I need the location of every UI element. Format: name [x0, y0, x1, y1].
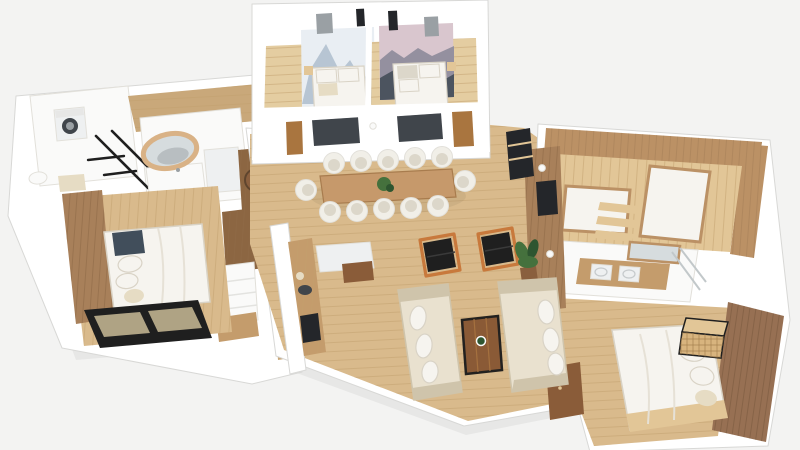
dining-chair[interactable]: [351, 151, 372, 172]
pillow: [316, 69, 337, 83]
jug[interactable]: [296, 272, 304, 280]
centerpiece-plant-leaf: [386, 184, 394, 192]
chair-seat: [436, 153, 448, 165]
chair-seat: [324, 204, 336, 216]
sink: [591, 264, 613, 280]
dining-chair[interactable]: [455, 171, 476, 192]
dining-chair[interactable]: [428, 196, 449, 217]
chair-seat: [457, 176, 469, 188]
dining-chair[interactable]: [401, 198, 422, 219]
cooktop[interactable]: [300, 313, 321, 343]
table-plant: [477, 337, 486, 346]
tv[interactable]: [536, 180, 558, 216]
pillow: [397, 65, 418, 79]
pillow: [419, 64, 440, 78]
chair-seat: [355, 157, 367, 169]
headboard-cushion: [112, 230, 145, 256]
dining-chair[interactable]: [432, 147, 453, 168]
bedroom-door[interactable]: [452, 111, 474, 147]
washer-door-glass: [66, 122, 74, 130]
sink: [619, 266, 641, 282]
rattan-cabinet[interactable]: [679, 318, 728, 358]
thermostat[interactable]: [370, 123, 376, 129]
pillow: [318, 83, 338, 96]
coffee-table[interactable]: [462, 316, 502, 374]
chair-seat: [378, 201, 390, 213]
nightstand[interactable]: [447, 62, 456, 71]
sideboard-knob: [558, 386, 562, 390]
sauna-bench-slats: [594, 202, 638, 242]
dining-chair[interactable]: [320, 202, 341, 223]
chair-seat: [328, 159, 340, 171]
chair-seat: [405, 200, 417, 212]
pillow: [399, 79, 419, 92]
dining-chair[interactable]: [296, 180, 317, 201]
vanity-counter: [204, 147, 242, 193]
sauna-lounger[interactable]: [640, 166, 710, 242]
interior-window[interactable]: [312, 117, 360, 146]
door-glass: [94, 312, 150, 337]
bed-left[interactable]: [104, 224, 210, 310]
dining-chair[interactable]: [374, 199, 395, 220]
chair-seat: [351, 203, 363, 215]
faucet: [176, 168, 180, 172]
wall-tv[interactable]: [316, 13, 333, 34]
wall-art[interactable]: [388, 11, 398, 31]
dining-chair[interactable]: [378, 150, 399, 171]
shelf-unit[interactable]: [506, 128, 534, 180]
wall-tv[interactable]: [424, 16, 439, 36]
dining-chair[interactable]: [324, 153, 345, 174]
interior-window[interactable]: [397, 113, 443, 142]
sconce[interactable]: [539, 165, 546, 172]
bath-mat[interactable]: [58, 174, 86, 192]
plant-leaf: [518, 256, 538, 268]
chair-seat: [302, 184, 314, 196]
dining-chair[interactable]: [405, 148, 426, 169]
dining-chair[interactable]: [347, 201, 368, 222]
top-bedrooms: [252, 0, 490, 164]
cabinet-weave: [679, 332, 724, 358]
chair-seat: [432, 198, 444, 210]
pillow: [338, 68, 359, 82]
bedroom-door[interactable]: [286, 121, 303, 155]
lounger-pad: [640, 166, 710, 242]
wall-art[interactable]: [356, 9, 365, 27]
nightstand[interactable]: [304, 66, 313, 75]
kitchen-sink[interactable]: [298, 285, 312, 295]
floor-plan-canvas: [0, 0, 800, 450]
island-cabinet: [342, 261, 374, 283]
bed-b[interactable]: [393, 62, 448, 110]
chair-seat: [409, 154, 421, 166]
sconce[interactable]: [547, 251, 554, 258]
chair-seat: [382, 156, 394, 168]
